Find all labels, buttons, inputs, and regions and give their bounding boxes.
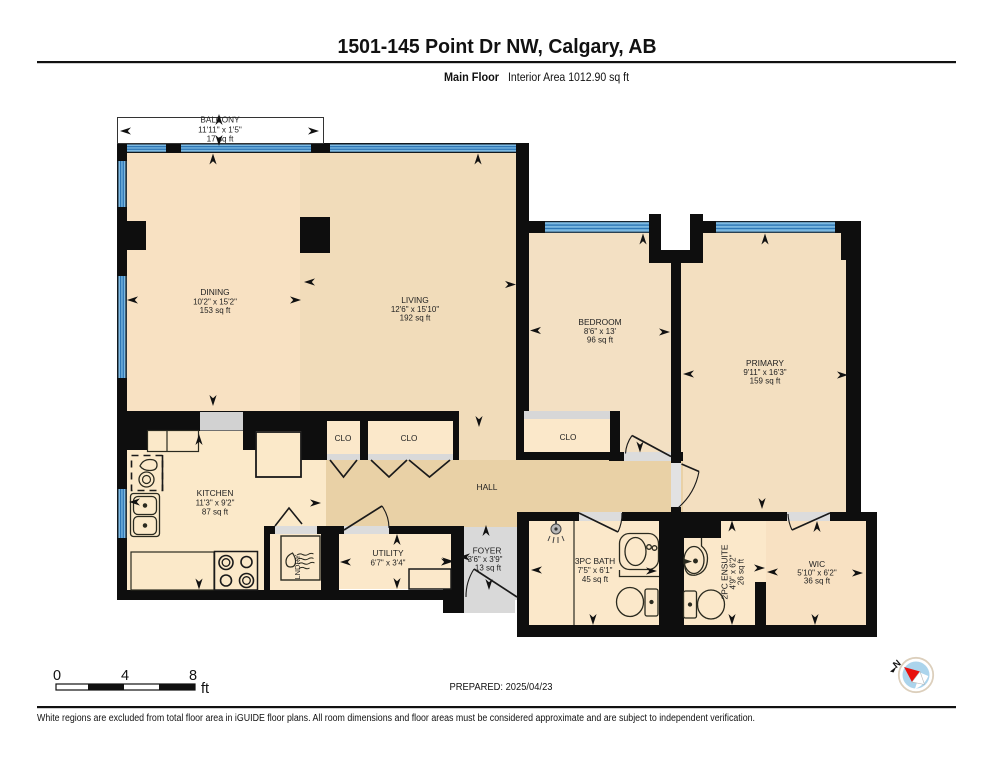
svg-text:CLO: CLO bbox=[560, 433, 577, 442]
svg-text:White regions are excluded fro: White regions are excluded from total fl… bbox=[37, 713, 755, 724]
svg-text:Main Floor: Main Floor bbox=[444, 70, 499, 84]
svg-text:WIC: WIC bbox=[809, 559, 825, 569]
svg-text:11'3" x 9'2": 11'3" x 9'2" bbox=[196, 499, 235, 508]
svg-text:Interior Area 1012.90 sq ft: Interior Area 1012.90 sq ft bbox=[508, 70, 629, 84]
svg-text:HALL: HALL bbox=[477, 482, 498, 492]
svg-text:UTILITY: UTILITY bbox=[372, 548, 404, 558]
svg-text:153 sq ft: 153 sq ft bbox=[200, 306, 231, 315]
svg-text:DINING: DINING bbox=[200, 287, 229, 297]
svg-text:87 sq ft: 87 sq ft bbox=[202, 508, 229, 517]
svg-text:4: 4 bbox=[121, 668, 129, 684]
svg-text:7'5" x 6'1": 7'5" x 6'1" bbox=[578, 566, 613, 575]
svg-text:LNDRY: LNDRY bbox=[293, 554, 302, 579]
svg-text:13 sq ft: 13 sq ft bbox=[475, 564, 502, 573]
svg-text:36 sq ft: 36 sq ft bbox=[804, 577, 831, 586]
svg-text:LIVING: LIVING bbox=[401, 295, 428, 305]
svg-text:FOYER: FOYER bbox=[473, 546, 502, 556]
svg-text:159 sq ft: 159 sq ft bbox=[750, 377, 781, 386]
svg-text:6'7" x 3'4": 6'7" x 3'4" bbox=[371, 559, 406, 568]
svg-text:PREPARED: 2025/04/23: PREPARED: 2025/04/23 bbox=[450, 681, 553, 693]
svg-text:CLO: CLO bbox=[401, 434, 418, 443]
svg-text:PRIMARY: PRIMARY bbox=[746, 358, 784, 368]
svg-text:26 sq ft: 26 sq ft bbox=[737, 558, 746, 585]
svg-text:KITCHEN: KITCHEN bbox=[197, 488, 234, 498]
svg-text:ft: ft bbox=[201, 681, 209, 697]
svg-text:0: 0 bbox=[53, 668, 61, 684]
svg-text:1501-145 Point Dr NW, Calgary,: 1501-145 Point Dr NW, Calgary, AB bbox=[338, 36, 657, 58]
svg-text:3PC BATH: 3PC BATH bbox=[575, 556, 615, 566]
svg-text:8: 8 bbox=[189, 668, 197, 684]
svg-text:45 sq ft: 45 sq ft bbox=[582, 575, 609, 584]
svg-text:192 sq ft: 192 sq ft bbox=[400, 314, 431, 323]
svg-text:CLO: CLO bbox=[335, 434, 352, 443]
svg-text:96 sq ft: 96 sq ft bbox=[587, 336, 614, 345]
svg-text:BEDROOM: BEDROOM bbox=[578, 317, 621, 327]
svg-text:11'11" x 1'5": 11'11" x 1'5" bbox=[198, 126, 242, 135]
